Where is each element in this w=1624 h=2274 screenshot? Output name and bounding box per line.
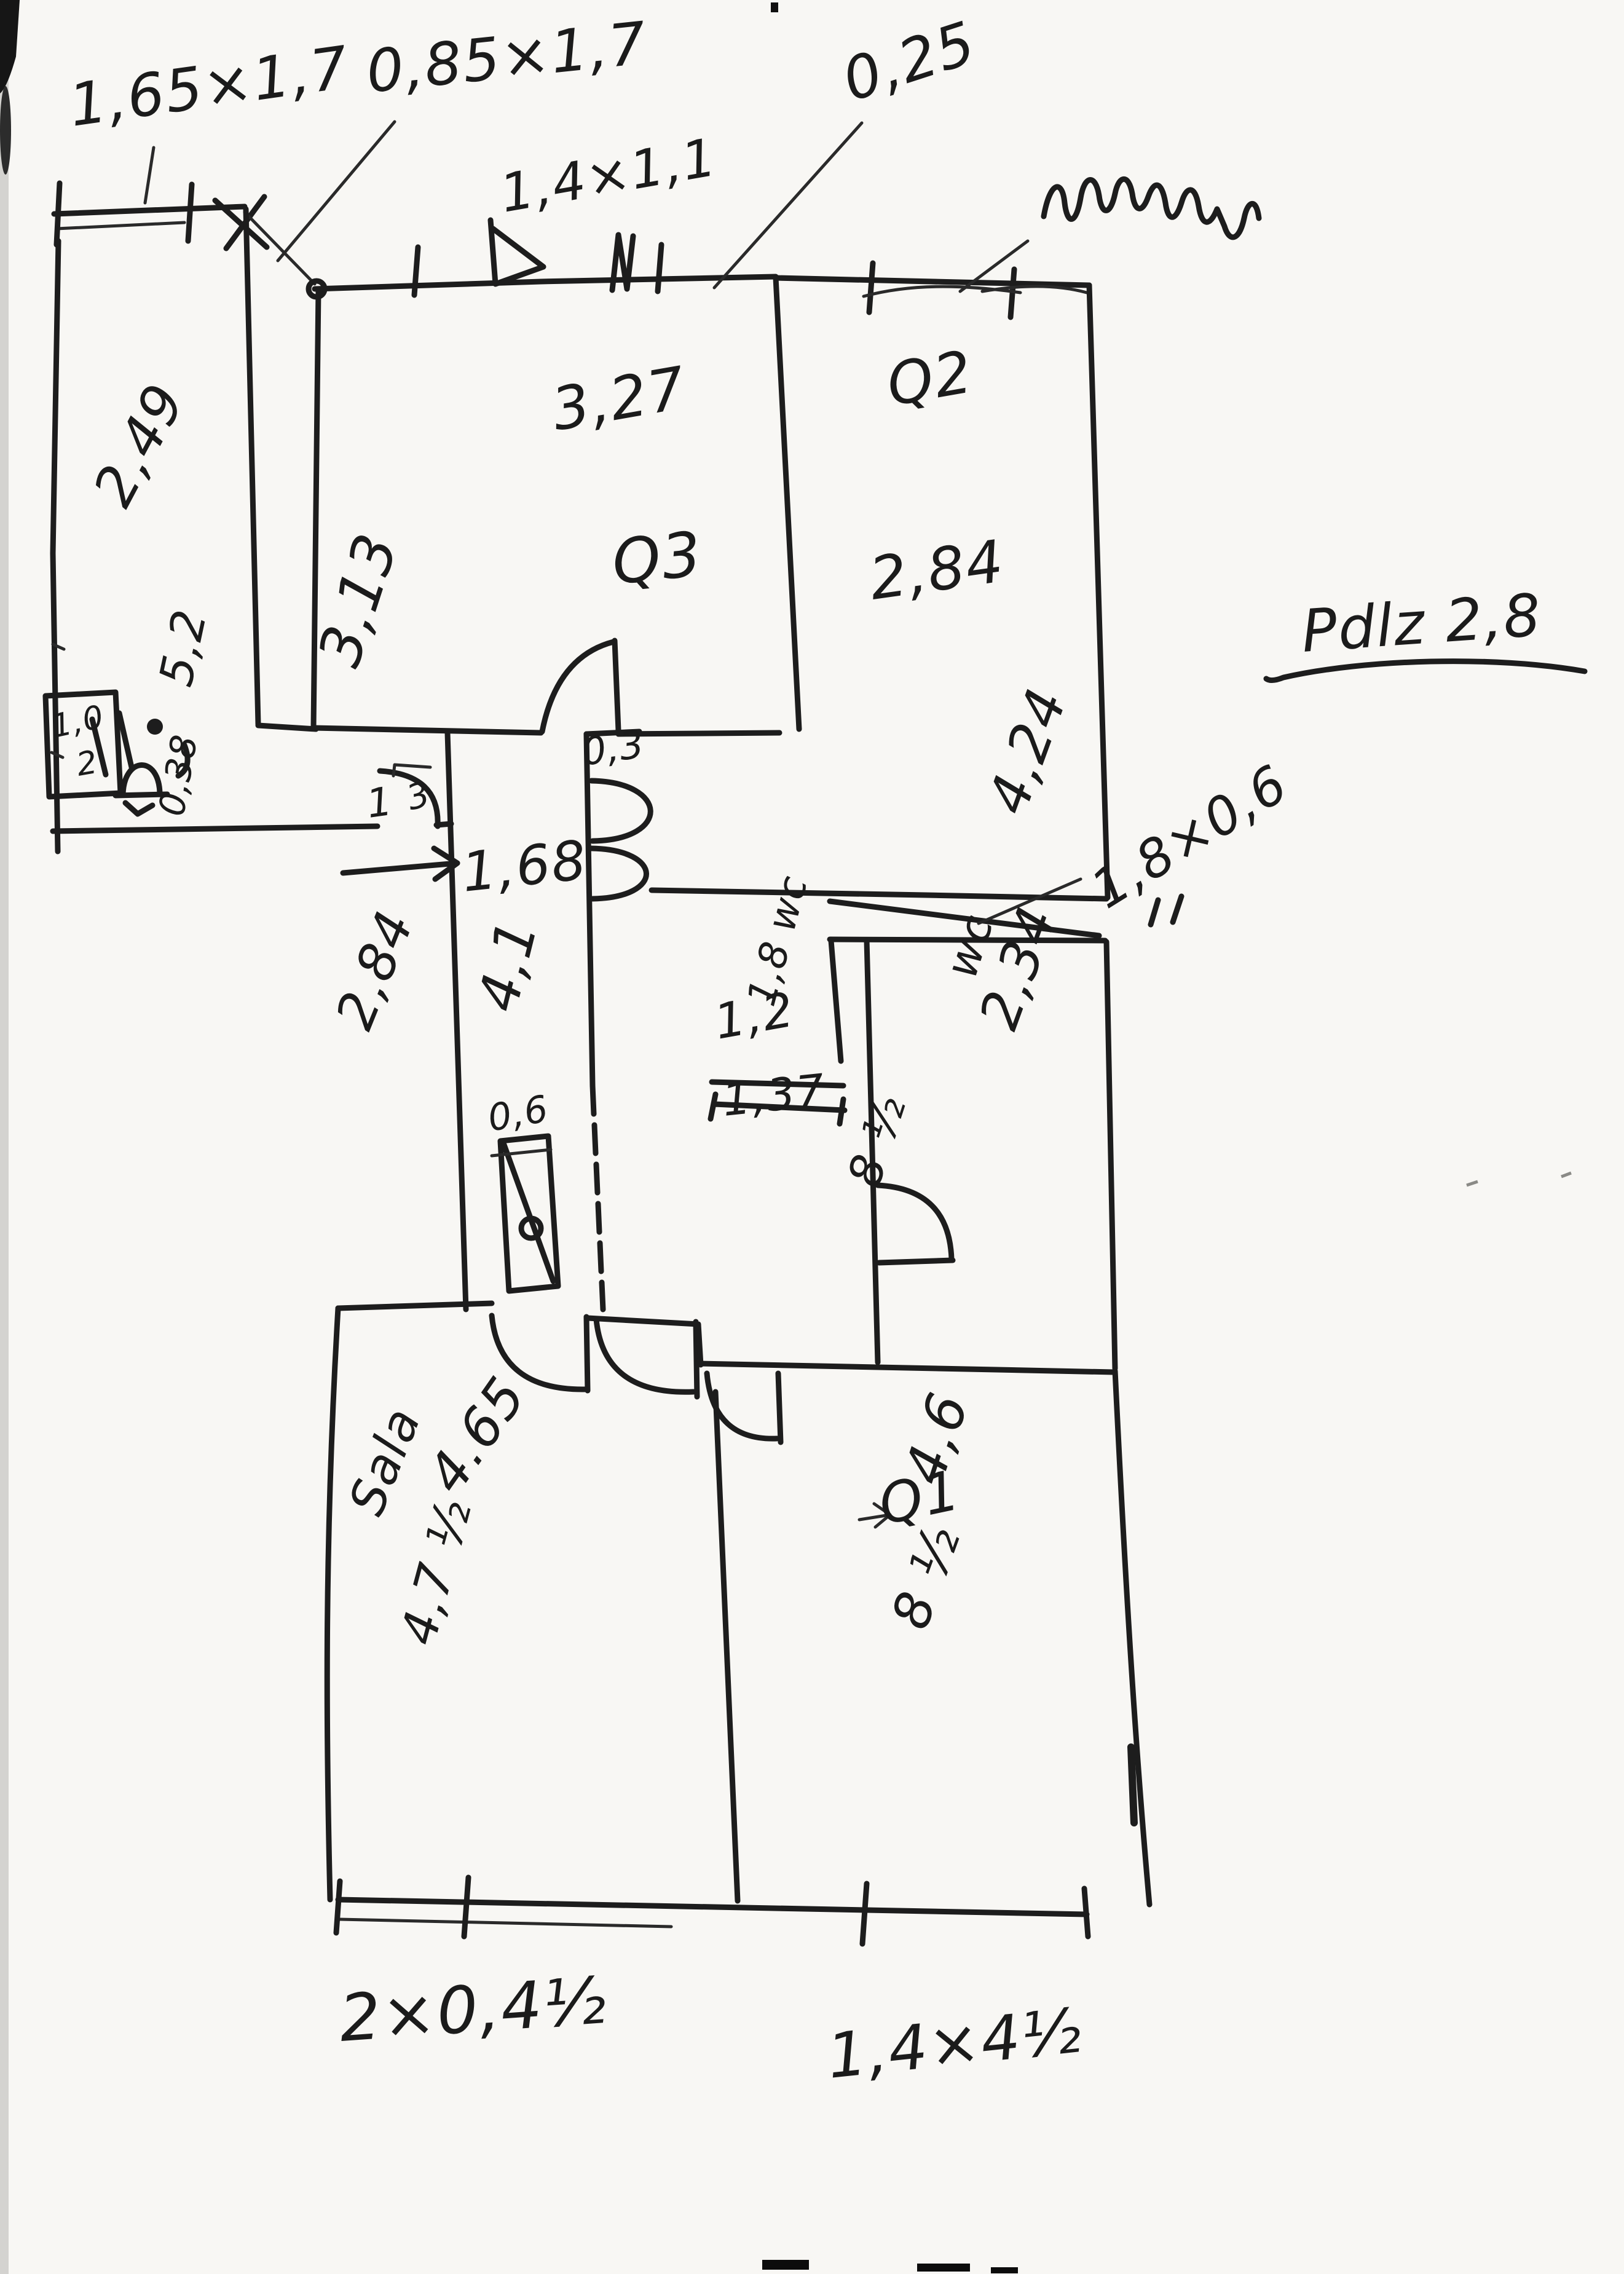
scan-top-mark: [771, 2, 778, 12]
wall-top: [315, 277, 776, 289]
label-wc-small-length: 1,37: [720, 1064, 828, 1126]
label-q2-depth: 4,24: [976, 680, 1080, 823]
label-q3-width: 3,27: [547, 354, 692, 444]
wall-divider-q3-q2: [776, 278, 799, 729]
leader-vent: [714, 123, 862, 288]
label-door-left: 1: [364, 779, 396, 827]
wall-top-double: [57, 223, 184, 229]
left-room-walls: [52, 183, 451, 851]
leader-window-large: [145, 148, 154, 203]
label-wc-large-door: 8 ½: [837, 1088, 916, 1193]
wall-top: [54, 207, 245, 214]
label-window-q3: 1,4×1,1: [495, 127, 721, 224]
wall-right: [246, 209, 258, 724]
window-tick: [658, 245, 661, 291]
scan-bottom-mark: [917, 2264, 970, 2272]
window-tick: [414, 247, 418, 295]
label-window-top-left-small: 0,85×1,7: [363, 10, 650, 106]
label-q1-width: 4,6: [892, 1385, 982, 1492]
scan-corner-blob: [0, 0, 20, 93]
wall-bottom: [53, 824, 451, 831]
large-wc-wall-bottom: [698, 1364, 1114, 1372]
label-q3-name: Q3: [609, 518, 706, 599]
label-left-room-width: 2,49: [81, 373, 199, 516]
scan-bottom-mark: [762, 2260, 809, 2270]
door-arc: [542, 642, 613, 732]
wall-top-mid: [588, 1318, 701, 1365]
tick-marks: [1151, 896, 1181, 925]
label-vent: 0,25: [835, 9, 984, 114]
page-edge-shadow: [0, 0, 9, 2274]
wall-bottom: [313, 728, 779, 734]
wall-right: [1089, 285, 1108, 898]
label-window-bottom-right: 1,4×4½: [824, 1994, 1085, 2093]
door-arc: [591, 848, 647, 899]
check-mark: [125, 803, 152, 814]
scanned-sketch-page: 1,65×1,7 0,85×1,7 1,4×1,1 0,25 2,49 5,2 …: [0, 0, 1624, 2274]
scan-edge-blob: [0, 86, 11, 175]
wall-top: [776, 278, 1089, 285]
label-q2-name: Q2: [882, 338, 978, 420]
corner-diagonal: [245, 212, 315, 284]
label-sala-name: Sala: [337, 1399, 432, 1523]
wall-left: [327, 1308, 338, 1900]
label-q3-depth: 3,13: [305, 525, 411, 674]
label-hall-step: 0,3: [579, 721, 647, 774]
wc-door-arc: [878, 1185, 953, 1263]
door-arc-bottom: [596, 1319, 697, 1397]
ink-blob: [1131, 1747, 1134, 1823]
wall-right-dashed: [593, 1086, 603, 1309]
label-hall-side: 2,84: [325, 902, 427, 1038]
label-wc-small-width: 1,2: [711, 982, 799, 1050]
label-window-bottom-left: 2×0,4½: [337, 1963, 609, 2056]
wall-left: [447, 733, 466, 1309]
entry-arrow: [343, 848, 457, 879]
label-sala-bottom: 4,7 ½: [390, 1493, 483, 1651]
wall-left: [53, 241, 58, 851]
label-radiator: 0,6: [484, 1088, 551, 1140]
wall-wavy-double: [864, 286, 1087, 296]
floorplan-sketch: 1,65×1,7 0,85×1,7 1,4×1,1 0,25 2,49 5,2 …: [0, 0, 1624, 2274]
leader-window-small: [278, 122, 395, 261]
label-window-wc: 1,8×0,6: [1081, 753, 1299, 920]
pen-specks: [1467, 1173, 1571, 1185]
label-q2-width: 2,84: [865, 527, 1009, 613]
label-cabinet-b: 2: [74, 744, 101, 784]
small-wc-wall-right: [831, 941, 841, 1061]
radiator: [492, 1136, 558, 1291]
label-door-mark: 3: [403, 774, 435, 818]
label-sala-width: 4.65: [415, 1365, 538, 1504]
label-hall-wall: 0,38: [151, 732, 206, 819]
scan-bottom-mark: [991, 2267, 1018, 2273]
window-tick: [57, 183, 60, 245]
door-arc: [591, 781, 650, 841]
wall-divider-sala-q1: [715, 1392, 738, 1901]
large-wc-wall-right: [1106, 942, 1115, 1368]
window-pennant: [491, 220, 543, 284]
wall-connector: [258, 725, 316, 729]
room-q3-walls: [313, 220, 799, 734]
label-hall-length: 4,1: [465, 913, 550, 1017]
window-tick: [188, 184, 192, 241]
scan-artifacts: [0, 0, 1571, 2274]
label-window-top-left-large: 1,65×1,7: [65, 34, 353, 140]
label-hall-width: 1,68: [459, 828, 590, 904]
radiator-diagonal: [504, 1145, 553, 1281]
label-left-room-depth: 5,2: [149, 604, 218, 691]
door-leaf: [615, 641, 618, 730]
wall-right: [586, 734, 593, 1086]
wc-zone-walls: [652, 879, 1181, 1372]
label-floor-height: Pdlz 2,8: [1299, 582, 1544, 666]
wall-bottom: [338, 1900, 1087, 1914]
wall-left: [313, 290, 318, 728]
wall-top-left: [338, 1303, 492, 1308]
wall-bottom-double: [339, 1919, 671, 1927]
ink-dot: [147, 719, 163, 735]
labels: 1,65×1,7 0,85×1,7 1,4×1,1 0,25 2,49 5,2 …: [48, 9, 1544, 2092]
illegible-scribble: [1044, 179, 1259, 237]
